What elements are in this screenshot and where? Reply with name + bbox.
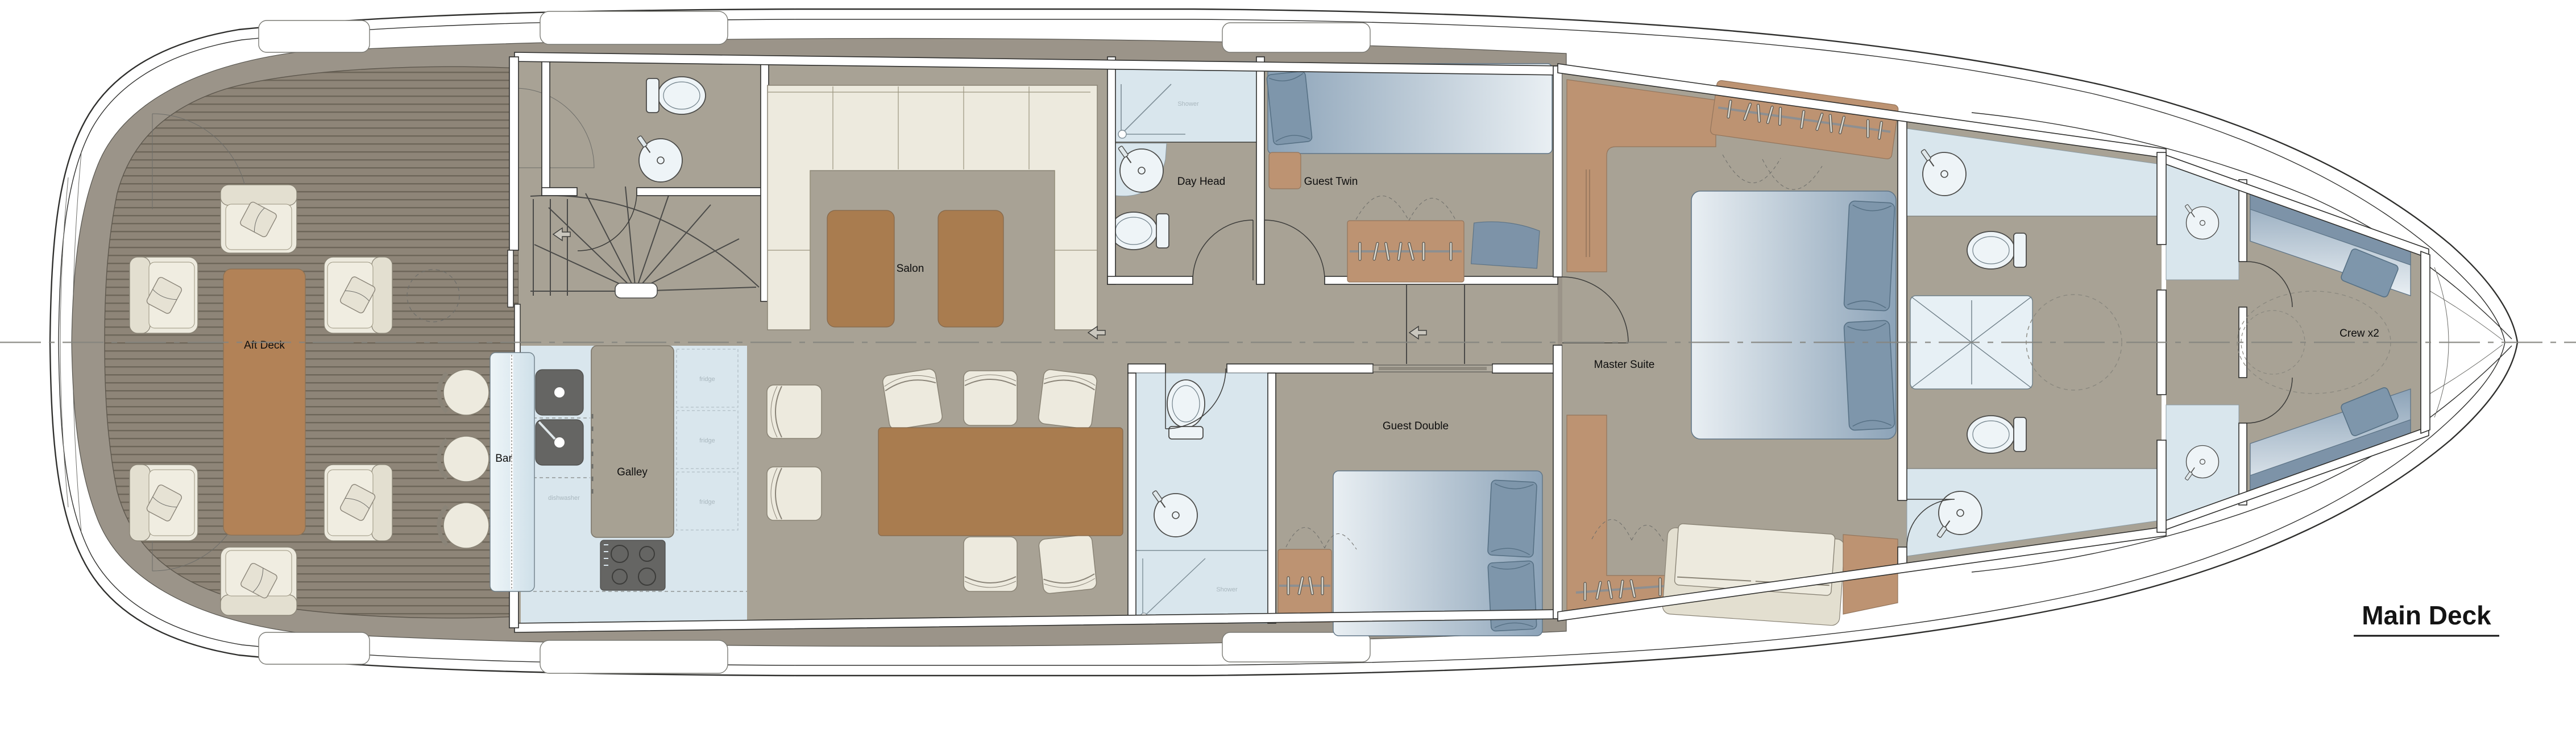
master-suite: Master Suite (1558, 64, 2166, 626)
dining-chair (767, 385, 822, 438)
sliding-door (1379, 367, 1487, 370)
master-suite-label: Master Suite (1594, 359, 1655, 371)
entry-sliding-door (508, 250, 513, 307)
fridge-label: fridge (699, 499, 715, 506)
toilet (1967, 416, 2026, 453)
shower-label: Shower (1216, 586, 1238, 593)
stove (600, 540, 665, 590)
aft-deck-label: Aft Deck (244, 339, 285, 351)
deck-title: Main Deck (2354, 601, 2499, 636)
dining-chair (964, 537, 1017, 591)
bar: Bar (490, 353, 534, 591)
bar-stool (439, 436, 489, 482)
crew-label: Crew x2 (2339, 328, 2379, 339)
dining-chair (964, 371, 1017, 425)
aft-deck-table (223, 269, 305, 535)
twin-bench (1471, 220, 1540, 268)
dining-chair (1038, 369, 1098, 430)
shower-label: Shower (1177, 101, 1199, 107)
bar-stool (439, 503, 489, 548)
deck-armchair (130, 257, 198, 333)
floor-plan: Aft Deck (0, 0, 2576, 737)
dining-table (878, 428, 1123, 536)
toilet (646, 77, 706, 114)
deck-armchair (221, 547, 297, 615)
guest-twin-label: Guest Twin (1304, 176, 1358, 188)
guest-double-bath: Shower (1128, 368, 1276, 623)
fridge-label: fridge (699, 376, 715, 383)
master-sofa (1662, 523, 1845, 626)
fridge-label: fridge (699, 437, 715, 444)
coffee-table (827, 210, 894, 327)
deck-armchair (130, 465, 198, 541)
deck-armchair (324, 465, 392, 541)
bar-label: Bar (495, 453, 512, 465)
toilet (1967, 231, 2026, 269)
dining-chair (767, 467, 822, 520)
main-deck-plan: Aft Deck (0, 0, 2576, 737)
salon-label: Salon (897, 263, 924, 275)
toilet (1110, 212, 1169, 250)
deck-armchair (221, 185, 297, 253)
guest-double-label: Guest Double (1383, 420, 1449, 432)
dining-chair (882, 368, 943, 430)
coffee-table (938, 210, 1003, 327)
dining-chair (1038, 534, 1097, 594)
dishwasher-label: dishwasher (548, 495, 580, 502)
galley-island (591, 346, 674, 537)
nightstand (1269, 152, 1301, 189)
toilet (1167, 380, 1205, 439)
main-block: Salon dishwasher Galley (490, 52, 1562, 636)
deck-title-text: Main Deck (2362, 601, 2491, 630)
galley-label: Galley (617, 466, 648, 478)
bar-stool (439, 370, 489, 415)
deck-armchair (324, 257, 392, 333)
day-head-label: Day Head (1177, 176, 1226, 188)
